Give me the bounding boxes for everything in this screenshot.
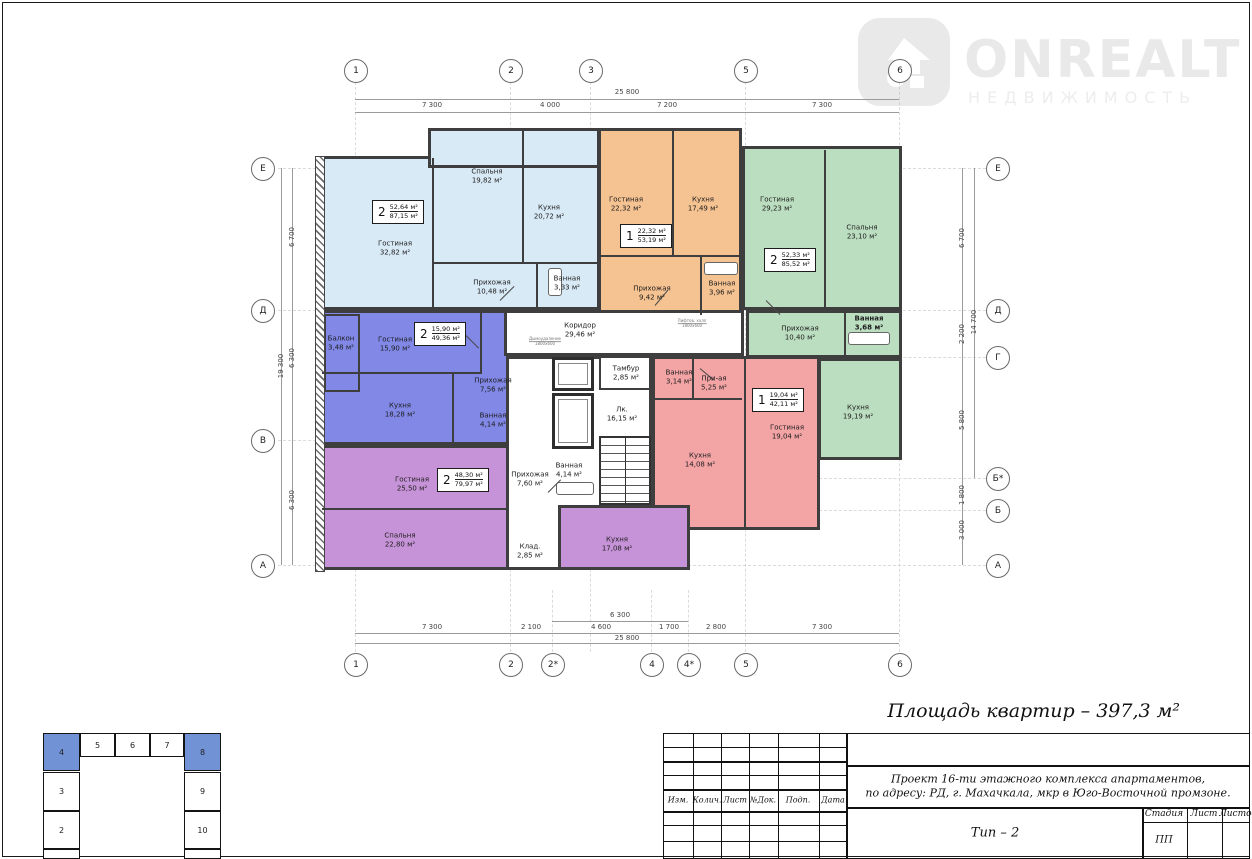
room-label: Прихожая10,40 м² <box>781 324 819 342</box>
room-name: Прихожая <box>474 376 512 384</box>
wall <box>700 255 702 315</box>
bathtub <box>556 482 594 495</box>
annotation-text: 1800х600 <box>535 342 555 347</box>
room-area: 2,85 м² <box>613 373 640 382</box>
room-area: 19,04 м² <box>770 432 804 441</box>
wall <box>824 150 826 310</box>
axis-right: Б <box>986 499 1010 523</box>
room-label: Кухня18,28 м² <box>385 401 415 419</box>
room-area: 17,49 м² <box>688 204 718 213</box>
unit-living-area: 22,32 м² <box>638 227 666 236</box>
wall <box>522 130 524 262</box>
dim-label: 14 700 <box>970 308 978 337</box>
room-label: Коридор29,46 м² <box>564 321 596 339</box>
titleblock-line <box>663 761 847 763</box>
unit-total-area: 49,36 м² <box>432 334 460 342</box>
elevator-shaft <box>552 357 594 391</box>
room-name: Ванная <box>480 411 507 419</box>
room-name: Балкон <box>328 334 355 342</box>
wall <box>452 372 454 445</box>
titleblock-line <box>663 789 847 791</box>
room-area: 5,25 м² <box>701 383 727 392</box>
room-name: При-ая <box>701 374 726 382</box>
room-area: 10,48 м² <box>473 287 511 296</box>
room-label: Балкон3,48 м² <box>328 334 355 352</box>
room-name: Ванная <box>554 274 581 282</box>
unit-rooms: 1 <box>758 393 766 407</box>
room-label: Гостиная29,23 м² <box>760 195 794 213</box>
dim-label: 2 800 <box>704 623 728 631</box>
room-label: Гостиная25,50 м² <box>395 475 429 493</box>
room-area: 14,08 м² <box>685 460 715 469</box>
room-label: Кухня19,19 м² <box>843 403 873 421</box>
annotation-text: 1800х600 <box>682 324 702 329</box>
room-name: Прихожая <box>781 324 819 332</box>
unit-stamp: 119,04 м²42,11 м² <box>752 388 804 412</box>
dim-label: 25 800 <box>613 88 642 96</box>
stage-col-header: Стадия <box>1145 809 1183 819</box>
dim-label: 4 600 <box>589 623 613 631</box>
room-area: 20,72 м² <box>534 212 564 221</box>
unit-living-area: 19,04 м² <box>770 391 798 400</box>
wall <box>844 312 846 358</box>
room-label: Гостиная19,04 м² <box>770 423 804 441</box>
dim-line <box>552 621 688 622</box>
dim-label: 5 800 <box>958 408 966 432</box>
dim-label: 19 300 <box>277 352 285 381</box>
titleblock-line <box>663 747 847 748</box>
axis-bottom: 5 <box>734 653 758 677</box>
bathtub <box>848 332 890 345</box>
axis-bottom: 1 <box>344 653 368 677</box>
room-area: 32,82 м² <box>378 248 412 257</box>
unit-areas: 15,90 м²49,36 м² <box>432 325 460 343</box>
room-label: Лк.16,15 м² <box>607 405 637 423</box>
dim-label: 25 800 <box>613 634 642 642</box>
dim-label: 7 300 <box>810 101 834 109</box>
annotation: Лифтов. холл1800х600 <box>678 319 707 329</box>
keyplan-cell-6: 6 <box>115 733 150 757</box>
axis-left: Д <box>251 299 275 323</box>
room-area: 19,82 м² <box>471 176 502 185</box>
unit-areas: 52,64 м²87,15 м² <box>390 203 418 221</box>
unit-total-area: 79,97 м² <box>455 480 483 488</box>
axis-bottom: 4* <box>677 653 701 677</box>
axis-right: Д <box>986 299 1010 323</box>
axis-top: 2 <box>499 59 523 83</box>
room-name: Лк. <box>616 405 628 413</box>
unit-rooms: 1 <box>626 229 634 243</box>
room-label: Прихожая7,60 м² <box>511 470 549 488</box>
room-name: Гостиная <box>378 239 412 247</box>
dim-label: 1 800 <box>958 483 966 507</box>
axis-bottom: 2* <box>541 653 565 677</box>
room-label: Ванная3,33 м² <box>554 274 581 292</box>
room-area: 9,42 м² <box>633 293 671 302</box>
room-label: Тамбур2,85 м² <box>613 364 640 382</box>
room-label: Кухня20,72 м² <box>534 203 564 221</box>
dim-label: 4 000 <box>538 101 562 109</box>
room-area: 2,85 м² <box>517 551 543 560</box>
room-name: Кухня <box>606 535 628 543</box>
titleblock-line <box>1187 807 1188 859</box>
titleblock-line <box>663 841 847 842</box>
unit-stamp: 248,30 м²79,97 м² <box>437 468 489 492</box>
room-label: Прихожая7,56 м² <box>474 376 512 394</box>
axis-right: Б* <box>986 467 1010 491</box>
unit-rooms: 2 <box>443 473 451 487</box>
corridor <box>504 310 744 356</box>
room-area: 25,50 м² <box>395 484 429 493</box>
unit-rooms: 2 <box>378 205 386 219</box>
unit-total-area: 53,19 м² <box>638 236 666 244</box>
axis-top: 5 <box>734 59 758 83</box>
axis-left: Е <box>251 157 275 181</box>
room-label: Спальня19,82 м² <box>471 167 502 185</box>
room-label: Кухня17,08 м² <box>602 535 632 553</box>
keyplan-cell-3: 3 <box>43 772 80 811</box>
titleblock-line <box>663 775 847 776</box>
unit-rooms: 2 <box>420 327 428 341</box>
unit-total-area: 85,52 м² <box>782 260 810 268</box>
wall <box>652 398 742 400</box>
keyplan-cell-10: 10 <box>184 811 221 849</box>
axis-left: В <box>251 429 275 453</box>
room-name: Прихожая <box>473 278 511 286</box>
room-name: Кухня <box>692 195 714 203</box>
room-name: Гостиная <box>760 195 794 203</box>
dim-label: 3 000 <box>958 518 966 542</box>
wall <box>432 158 434 310</box>
axis-left: А <box>251 554 275 578</box>
keyplan-cell-partial <box>184 849 221 859</box>
project-title-line1: Проект 16-ти этажного комплекса апартаме… <box>891 773 1205 786</box>
room-label: Гостиная15,90 м² <box>378 335 412 353</box>
room-area: 16,15 м² <box>607 414 637 423</box>
room-area: 17,08 м² <box>602 544 632 553</box>
room-area: 7,60 м² <box>511 479 549 488</box>
room-area: 29,23 м² <box>760 204 794 213</box>
axis-top: 1 <box>344 59 368 83</box>
room-label: Прихожая9,42 м² <box>633 284 671 302</box>
room-label: При-ая5,25 м² <box>701 374 727 392</box>
room-area: 18,28 м² <box>385 410 415 419</box>
axis-top: 6 <box>888 59 912 83</box>
titleblock-line <box>1142 822 1250 823</box>
unit-areas: 48,30 м²79,97 м² <box>455 471 483 489</box>
unit-living-area: 52,33 м² <box>782 251 810 260</box>
col-dok: №Док. <box>750 796 776 805</box>
axis-top: 3 <box>579 59 603 83</box>
wall <box>598 255 742 257</box>
room-label: Ванная3,68 м² <box>855 314 884 332</box>
elevator-car <box>558 363 588 385</box>
room-name: Прихожая <box>633 284 671 292</box>
col-podp: Подп. <box>786 796 811 805</box>
col-kolich: Колич. <box>693 796 722 805</box>
dim-label: 2 100 <box>519 623 543 631</box>
titleblock-line <box>663 825 847 826</box>
unit-areas: 22,32 м²53,19 м² <box>638 227 666 245</box>
room-area: 29,46 м² <box>564 330 596 339</box>
room-name: Гостиная <box>395 475 429 483</box>
room-name: Коридор <box>564 321 596 329</box>
room-name: Клад. <box>520 542 541 550</box>
wall <box>480 312 482 372</box>
room-name: Кухня <box>689 451 711 459</box>
stage-value: ПП <box>1155 835 1172 846</box>
dim-label: 7 300 <box>420 623 444 631</box>
room-name: Прихожая <box>511 470 549 478</box>
keyplan-cell-8: 8 <box>184 733 221 771</box>
unit-areas: 52,33 м²85,52 м² <box>782 251 810 269</box>
dim-label: 7 300 <box>420 101 444 109</box>
bathtub <box>704 262 738 275</box>
dim-label: 2 200 <box>958 322 966 346</box>
dim-label: 7 300 <box>810 623 834 631</box>
room-label: Ванная4,14 м² <box>480 411 507 429</box>
room-name: Спальня <box>384 531 415 539</box>
axis-bottom: 2 <box>499 653 523 677</box>
dim-line <box>355 643 899 644</box>
room-name: Кухня <box>538 203 560 211</box>
wall <box>322 508 507 510</box>
room-label: Клад.2,85 м² <box>517 542 543 560</box>
apartment-green <box>742 146 902 310</box>
room-label: Гостиная22,32 м² <box>609 195 643 213</box>
room-area: 7,56 м² <box>474 385 512 394</box>
dim-label: 6 300 <box>608 611 632 619</box>
unit-stamp: 215,90 м²49,36 м² <box>414 322 466 346</box>
unit-rooms: 2 <box>770 253 778 267</box>
col-data: Дата <box>821 796 845 805</box>
room-label: Гостиная32,82 м² <box>378 239 412 257</box>
room-area: 23,10 м² <box>846 232 877 241</box>
keyplan-cell-9: 9 <box>184 772 221 811</box>
dim-label: 6 700 <box>958 226 966 250</box>
plan-type-label: Тип – 2 <box>971 826 1019 841</box>
room-name: Ванная <box>556 461 583 469</box>
wall <box>432 262 600 264</box>
room-label: Ванная3,14 м² <box>666 368 693 386</box>
room-area: 19,19 м² <box>843 412 873 421</box>
axis-bottom: 4 <box>640 653 664 677</box>
unit-stamp: 252,64 м²87,15 м² <box>372 200 424 224</box>
axis-right: Е <box>986 157 1010 181</box>
wall <box>744 358 746 530</box>
room-area: 15,90 м² <box>378 344 412 353</box>
unit-total-area: 42,11 м² <box>770 400 798 408</box>
keyplan-cell-4: 4 <box>43 733 80 771</box>
room-name: Спальня <box>471 167 502 175</box>
room-name: Кухня <box>847 403 869 411</box>
room-area: 3,48 м² <box>328 343 355 352</box>
room-label: Спальня23,10 м² <box>846 223 877 241</box>
room-area: 3,14 м² <box>666 377 693 386</box>
titleblock-line <box>847 807 1250 809</box>
titleblock-line <box>1142 807 1144 859</box>
room-label: Спальня22,80 м² <box>384 531 415 549</box>
room-area: 22,80 м² <box>384 540 415 549</box>
room-area: 10,40 м² <box>781 333 819 342</box>
keyplan-cell-partial <box>43 849 80 859</box>
col-list: Лист <box>723 796 747 805</box>
room-area: 3,96 м² <box>709 288 736 297</box>
room-area: 4,14 м² <box>480 420 507 429</box>
room-name: Кухня <box>389 401 411 409</box>
wall <box>672 130 674 255</box>
unit-areas: 19,04 м²42,11 м² <box>770 391 798 409</box>
apartments-total-area: Площадь квартир – 397,3 м² <box>850 700 1180 722</box>
unit-living-area: 52,64 м² <box>390 203 418 212</box>
axis-right: А <box>986 554 1010 578</box>
dim-line <box>355 99 899 100</box>
room-label: Ванная4,14 м² <box>556 461 583 479</box>
project-title-line2: по адресу: РД, г. Махачкала, мкр в Юго-В… <box>865 787 1230 800</box>
room-area: 3,33 м² <box>554 283 581 292</box>
dim-line <box>355 112 899 113</box>
unit-living-area: 15,90 м² <box>432 325 460 334</box>
annotation: Дымоудаление1800х600 <box>529 337 561 347</box>
sheets-col-header: Листов <box>1219 809 1252 819</box>
axis-bottom: 6 <box>888 653 912 677</box>
unit-living-area: 48,30 м² <box>455 471 483 480</box>
titleblock-line <box>847 765 1250 767</box>
room-label: Прихожая10,48 м² <box>473 278 511 296</box>
dim-label: 6 700 <box>288 225 296 249</box>
apartment-lightblue <box>428 128 600 168</box>
room-name: Спальня <box>846 223 877 231</box>
unit-total-area: 87,15 м² <box>390 212 418 220</box>
room-name: Гостиная <box>609 195 643 203</box>
titleblock-line <box>663 811 847 813</box>
room-label: Ванная3,96 м² <box>709 279 736 297</box>
onrealt-logo-subtitle: НЕДВИЖИМОСТЬ <box>968 88 1197 107</box>
sheet-col-header: Лист <box>1191 809 1218 819</box>
elevator-car <box>558 399 588 443</box>
room-area: 3,68 м² <box>855 323 884 332</box>
wall <box>536 262 538 310</box>
room-label: Кухня17,49 м² <box>688 195 718 213</box>
keyplan-cell-7: 7 <box>150 733 184 757</box>
room-area: 4,14 м² <box>556 470 583 479</box>
room-name: Ванная <box>666 368 693 376</box>
dim-label: 6 300 <box>288 346 296 370</box>
onrealt-logo-text: ONREALT <box>964 30 1242 90</box>
unit-stamp: 122,32 м²53,19 м² <box>620 224 672 248</box>
unit-stamp: 252,33 м²85,52 м² <box>764 248 816 272</box>
room-name: Ванная <box>855 314 884 322</box>
dim-label: 1 700 <box>657 623 681 631</box>
dim-label: 7 200 <box>655 101 679 109</box>
col-izm: Изм. <box>668 796 689 805</box>
room-name: Гостиная <box>378 335 412 343</box>
staircase <box>599 436 651 505</box>
room-name: Тамбур <box>613 364 640 372</box>
keyplan-cell-2: 2 <box>43 811 80 849</box>
balcony <box>324 314 360 392</box>
wall <box>322 372 482 374</box>
keyplan-cell-5: 5 <box>80 733 115 757</box>
room-label: Кухня14,08 м² <box>685 451 715 469</box>
elevator-shaft <box>552 393 594 449</box>
room-name: Ванная <box>709 279 736 287</box>
dim-label: 6 300 <box>288 488 296 512</box>
room-name: Гостиная <box>770 423 804 431</box>
axis-right: Г <box>986 346 1010 370</box>
room-area: 22,32 м² <box>609 204 643 213</box>
drawing-sheet: ONREALT НЕДВИЖИМОСТЬ 25 800 7 300 4 000 … <box>0 0 1252 859</box>
